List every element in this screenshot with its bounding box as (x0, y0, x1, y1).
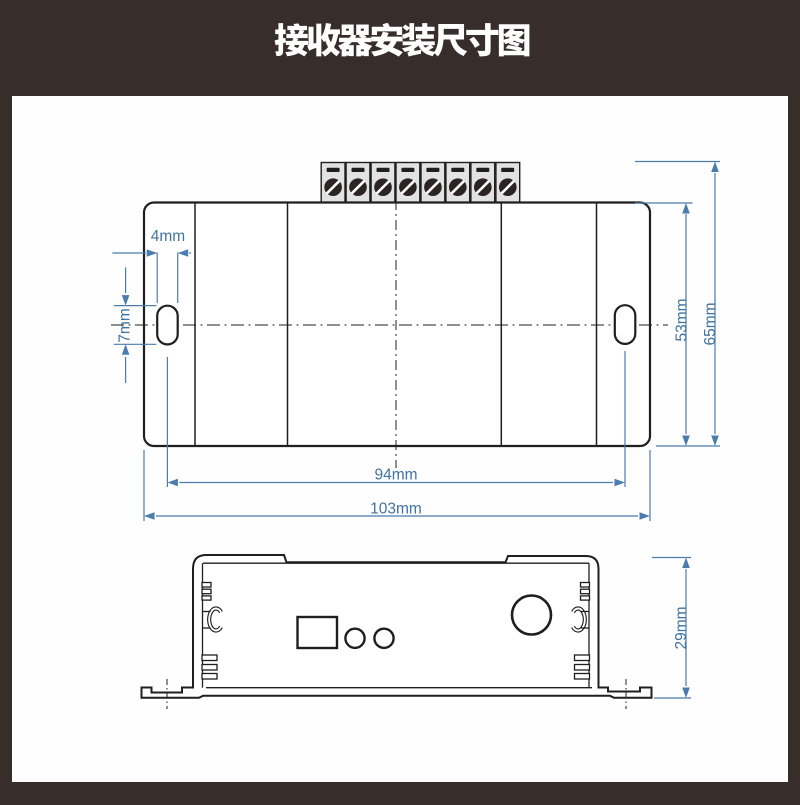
svg-text:65mm: 65mm (702, 302, 719, 345)
svg-text:53mm: 53mm (673, 298, 690, 341)
svg-text:94mm: 94mm (374, 467, 417, 484)
svg-text:7mm: 7mm (116, 308, 133, 342)
svg-text:103mm: 103mm (370, 501, 422, 518)
svg-text:4mm: 4mm (151, 228, 185, 245)
svg-text:29mm: 29mm (673, 606, 690, 649)
